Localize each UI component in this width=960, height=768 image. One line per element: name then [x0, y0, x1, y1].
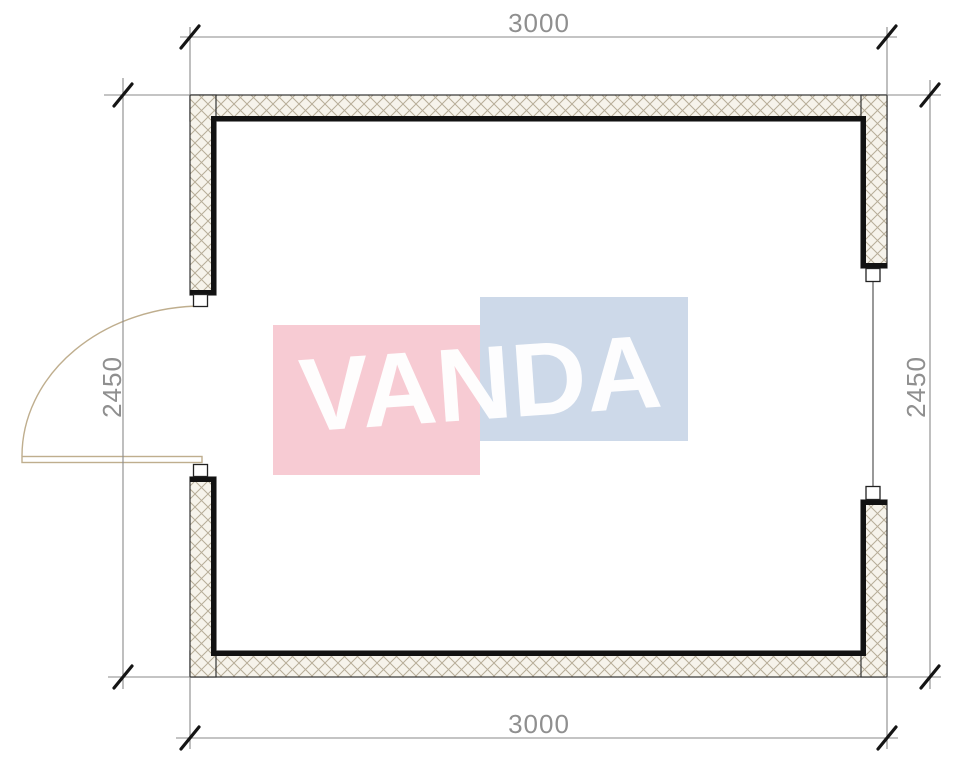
floor-plan-drawing: VANDA [0, 0, 960, 768]
window [866, 269, 880, 500]
left-dimension-label: 2450 [97, 356, 127, 418]
door-jamb-bottom [194, 465, 208, 477]
right-dimension-label: 2450 [901, 356, 931, 418]
door-leaf [22, 457, 202, 463]
top-dimension-label: 3000 [508, 8, 570, 38]
window-jamb-bottom [866, 487, 880, 500]
window-jamb-top [866, 269, 880, 282]
door-jamb-top [194, 295, 208, 307]
watermark-logo: VANDA [273, 297, 688, 475]
bottom-dimension-label: 3000 [508, 709, 570, 739]
floor-plan-canvas: VANDA [0, 0, 960, 768]
